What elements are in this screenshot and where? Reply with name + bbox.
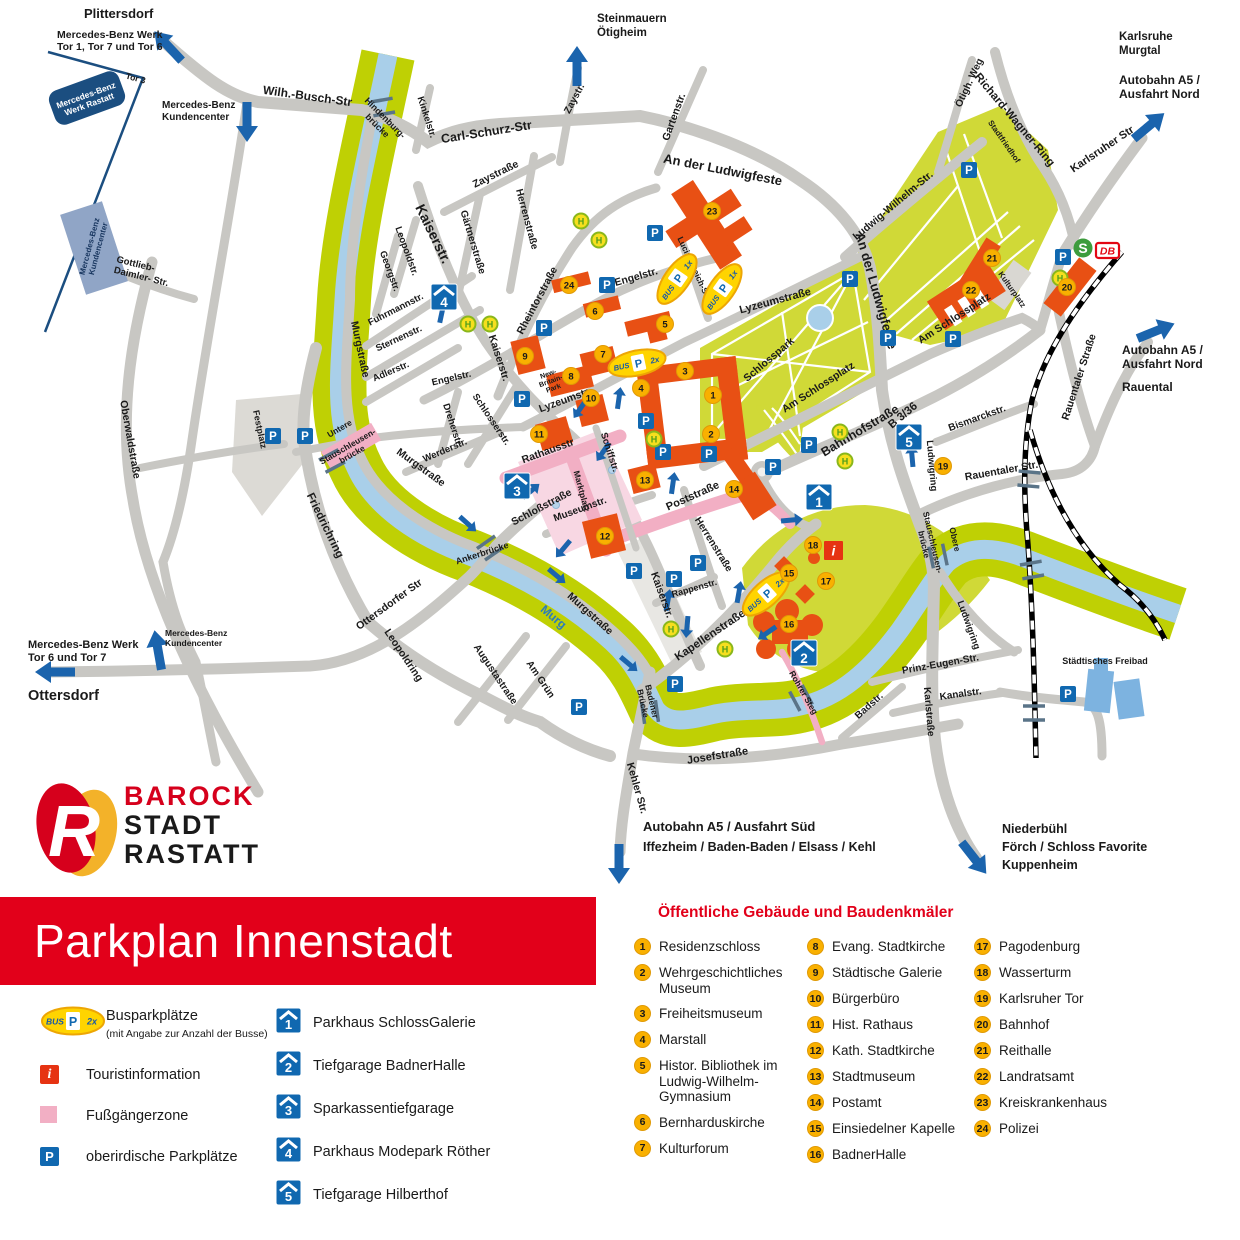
poi-marker-number: 17 (821, 577, 832, 588)
building-legend-item: 5Histor. Bibliothek im Ludwig-Wilhelm-Gy… (634, 1057, 807, 1105)
parking-icon-letter: P (301, 431, 309, 443)
svg-text:2: 2 (285, 1060, 292, 1075)
bus-parking-sublabel: (mit Angabe zur Anzahl der Busse) (106, 1028, 268, 1040)
surface-parking-icon: P (40, 1147, 59, 1166)
building-number-badge: 18 (974, 964, 991, 981)
poi-marker-number: 7 (600, 350, 605, 361)
tourist-info-label: Touristinformation (86, 1065, 200, 1084)
building-legend-item: 12Kath. Stadtkirche (807, 1042, 974, 1059)
street-label: Autobahn A5 /Ausfahrt Nord (1119, 73, 1201, 101)
building-label: Hist. Rathaus (832, 1016, 913, 1033)
building-number-badge: 15 (807, 1120, 824, 1137)
poi-marker-number: 6 (592, 307, 597, 318)
poi-marker-number: 4 (638, 384, 644, 395)
building-legend-item: 14Postamt (807, 1094, 974, 1111)
building-number-badge: 12 (807, 1042, 824, 1059)
parking-icon-letter: P (846, 274, 854, 286)
building-number-badge: 1 (634, 938, 651, 955)
svg-text:BUS: BUS (46, 1017, 64, 1027)
bus-stop-letter: H (842, 456, 849, 466)
building-legend-item: 21Reithalle (974, 1042, 1179, 1059)
parking-icon-letter: P (670, 574, 678, 586)
parking-icon-letter: P (694, 558, 702, 570)
street-label: Mercedes-Benz WerkTor 6 und Tor 7 (28, 639, 139, 664)
garage-legend-label: Parkhaus Modepark Röther (313, 1144, 490, 1160)
legend-garages: 1Parkhaus SchlossGalerie2Tiefgarage Badn… (276, 1008, 576, 1223)
building-label: Karlsruher Tor (999, 990, 1084, 1007)
logo-text: BAROCK STADT RASTATT (124, 782, 260, 869)
street-label: Tor 3 (125, 71, 147, 86)
building-number-badge: 2 (634, 964, 651, 981)
building-legend-item: 3Freiheitsmuseum (634, 1005, 807, 1022)
poi-marker-number: 21 (987, 254, 998, 265)
rastatt-emblem: R (36, 778, 118, 882)
bus-stop-letter: H (651, 434, 658, 444)
garage-legend-label: Parkhaus SchlossGalerie (313, 1015, 476, 1031)
building-label: Kreiskrankenhaus (999, 1094, 1107, 1111)
poi-marker-number: 10 (586, 394, 597, 405)
poi-marker-number: 18 (808, 541, 819, 552)
parking-icon-letter: P (949, 334, 957, 346)
building-number-badge: 5 (634, 1057, 651, 1074)
bus-parking-icon: BUS P 2x (40, 1006, 106, 1036)
page-title: Parkplan Innenstadt (0, 897, 596, 966)
street-label: Rauental (1122, 380, 1173, 394)
street-label: Zaystr. (562, 82, 587, 116)
svg-text:1: 1 (285, 1017, 292, 1032)
poi-marker-number: 19 (938, 462, 949, 473)
parking-icon-letter: P (630, 566, 638, 578)
parking-icon-letter: P (805, 440, 813, 452)
street-label: Ottersdorf (28, 688, 99, 704)
building-number-badge: 14 (807, 1094, 824, 1111)
street-label: Oberwaldstraße (117, 399, 143, 479)
building-legend-item: 8Evang. Stadtkirche (807, 938, 974, 955)
building-number-badge: 9 (807, 964, 824, 981)
legend-garage-item: 3Sparkassentiefgarage (276, 1094, 576, 1124)
building-label: Bernharduskirche (659, 1114, 765, 1131)
building-legend-item: 20Bahnhof (974, 1016, 1179, 1033)
poi-marker-number: 13 (640, 476, 651, 487)
building-label: Postamt (832, 1094, 882, 1111)
oneway-arrow (611, 386, 627, 410)
building-legend-item: 22Landratsamt (974, 1068, 1179, 1085)
building-label: Bürgerbüro (832, 990, 900, 1007)
legend-symbols: BUS P 2x Busparkplätze (mit Angabe zur A… (40, 1006, 280, 1188)
poi-marker-number: 1 (710, 391, 716, 402)
street-label: Autobahn A5 / Ausfahrt Süd (643, 819, 815, 834)
building-label: Freiheitsmuseum (659, 1005, 763, 1022)
building-number-badge: 16 (807, 1146, 824, 1163)
building-legend-item: 10Bürgerbüro (807, 990, 974, 1007)
legend-item-touristinfo: i Touristinformation (40, 1065, 280, 1084)
oneway-arrow (665, 471, 681, 495)
street-label: NiederbühlFörch / Schloss FavoriteKuppen… (1002, 822, 1147, 872)
building-legend-item: 13Stadtmuseum (807, 1068, 974, 1085)
db-letters: DB (1100, 246, 1116, 258)
sbahn-letter: S (1078, 240, 1087, 256)
building-label: Städtische Galerie (832, 964, 942, 981)
parking-icon-letter: P (1064, 689, 1072, 701)
logo-line-3: RASTATT (124, 840, 260, 869)
poi-marker-number: 2 (708, 430, 713, 441)
poi-marker-number: 20 (1062, 283, 1073, 294)
building-legend-item: 2Wehrgeschichtliches Museum (634, 964, 807, 996)
building-legend-item: 1Residenzschloss (634, 938, 807, 955)
building-legend-item: 17Pagodenburg (974, 938, 1179, 955)
legend-garage-item: 5Tiefgarage Hilberthof (276, 1180, 576, 1210)
poi-marker-number: 12 (600, 532, 611, 543)
buildings-column: 8Evang. Stadtkirche9Städtische Galerie10… (807, 938, 974, 1172)
building-label: BadnerHalle (832, 1146, 906, 1163)
garage-legend-label: Sparkassentiefgarage (313, 1101, 454, 1117)
parking-icon-letter: P (575, 702, 583, 714)
building-label: Histor. Bibliothek im Ludwig-Wilhelm-Gym… (659, 1057, 807, 1105)
parking-icon-letter: P (965, 165, 973, 177)
parking-icon-letter: P (603, 280, 611, 292)
street-label: Friedrichring (304, 491, 346, 560)
building-label: Residenzschloss (659, 938, 760, 955)
bus-parking-icon-svg: BUS P 2x (40, 1006, 106, 1036)
street-label: Plittersdorf (84, 6, 154, 21)
garage-number: 2 (800, 651, 808, 666)
direction-arrow (35, 661, 75, 683)
building-label: Wehrgeschichtliches Museum (659, 964, 807, 996)
legend-item-busparkplaetze: BUS P 2x Busparkplätze (mit Angabe zur A… (40, 1006, 280, 1043)
logo-line-2: STADT (124, 811, 260, 840)
poi-marker-number: 11 (534, 430, 545, 441)
legend-garage-item: 4Parkhaus Modepark Röther (276, 1137, 576, 1167)
building-number-badge: 13 (807, 1068, 824, 1085)
building-legend-item: 9Städtische Galerie (807, 964, 974, 981)
parking-icon-letter: P (651, 228, 659, 240)
street-label: Mercedes-BenzKundencenter (165, 628, 227, 648)
garage-legend-icon: 5 (276, 1180, 301, 1210)
bus-stop-letter: H (465, 319, 472, 329)
building-label: Stadtmuseum (832, 1068, 915, 1085)
buildings-column: 1Residenzschloss2Wehrgeschichtliches Mus… (634, 938, 807, 1172)
street-label: Mercedes-BenzKundencenter (162, 100, 235, 123)
parking-icon-letter: P (269, 431, 277, 443)
building-label: Kath. Stadtkirche (832, 1042, 935, 1059)
building-number-badge: 22 (974, 1068, 991, 1085)
building-number-badge: 20 (974, 1016, 991, 1033)
poi-marker-number: 8 (568, 372, 573, 383)
building-number-badge: 17 (974, 938, 991, 955)
building-number-badge: 7 (634, 1140, 651, 1157)
poi-marker-number: 16 (784, 620, 795, 631)
svg-text:5: 5 (285, 1189, 292, 1204)
legend-label: Busparkplätze (mit Angabe zur Anzahl der… (106, 1006, 268, 1043)
building-label: Marstall (659, 1031, 706, 1048)
building-label: Kulturforum (659, 1140, 729, 1157)
building-number-badge: 10 (807, 990, 824, 1007)
building-legend-item: 18Wasserturm (974, 964, 1179, 981)
bus-stop-letter: H (668, 624, 675, 634)
street-label: Städtisches Freibad (1062, 656, 1148, 666)
building-label: Bahnhof (999, 1016, 1049, 1033)
building-legend-item: 24Polizei (974, 1120, 1179, 1137)
building-legend-item: 6Bernharduskirche (634, 1114, 807, 1131)
building-number-badge: 4 (634, 1031, 651, 1048)
building-label: Reithalle (999, 1042, 1052, 1059)
building-legend-item: 11Hist. Rathaus (807, 1016, 974, 1033)
schlosspark-pond (807, 305, 833, 331)
building-number-badge: 24 (974, 1120, 991, 1137)
poi-marker-number: 3 (682, 367, 687, 378)
building-number-badge: 21 (974, 1042, 991, 1059)
parking-icon-letter: P (705, 449, 713, 461)
bus-stop-letter: H (837, 427, 844, 437)
building-number-badge: 19 (974, 990, 991, 1007)
parking-icon-letter: P (884, 333, 892, 345)
direction-arrow (566, 46, 588, 86)
legend-garage-item: 2Tiefgarage BadnerHalle (276, 1051, 576, 1081)
legend-item-fussgaengerzone: Fußgängerzone (40, 1106, 280, 1125)
street-label: SteinmauernÖtigheim (597, 13, 667, 39)
building-label: Evang. Stadtkirche (832, 938, 945, 955)
buildings-heading: Öffentliche Gebäude und Baudenkmäler (634, 904, 1234, 922)
pedestrian-zone-swatch (40, 1106, 57, 1123)
building-label: Einsiedelner Kapelle (832, 1120, 955, 1137)
building-number-badge: 23 (974, 1094, 991, 1111)
parking-icon-letter: P (659, 447, 667, 459)
bus-parking-label: Busparkplätze (106, 1008, 198, 1024)
building-legend-item: 23Kreiskrankenhaus (974, 1094, 1179, 1111)
freibad-buildings (1084, 658, 1145, 720)
legend-item-parkplaetze: P oberirdische Parkplätze (40, 1147, 280, 1166)
buildings-columns: 1Residenzschloss2Wehrgeschichtliches Mus… (634, 938, 1234, 1172)
poi-marker-number: 5 (662, 320, 668, 331)
garage-number: 5 (905, 435, 913, 450)
garage-legend-icon: 2 (276, 1051, 301, 1081)
bus-stop-letter: H (487, 319, 494, 329)
garage-legend-icon: 1 (276, 1008, 301, 1038)
svg-text:P: P (69, 1015, 77, 1029)
bus-stop-letter: H (722, 644, 729, 654)
parking-icon-letter: P (671, 679, 679, 691)
building-number-badge: 6 (634, 1114, 651, 1131)
parkplan-poster: PlittersdorfMercedes-Benz WerkTor 1, Tor… (0, 0, 1240, 1240)
building-legend-item: 7Kulturforum (634, 1140, 807, 1157)
poi-marker-number: 9 (522, 352, 527, 363)
parking-icon-letter: P (540, 323, 548, 335)
building-legend-item: 16BadnerHalle (807, 1146, 974, 1163)
garage-number: 3 (513, 484, 521, 499)
poi-marker-number: 24 (564, 281, 575, 292)
street-label: Iffezheim / Baden-Baden / Elsass / Kehl (643, 840, 876, 854)
poi-marker-number: 15 (784, 569, 795, 580)
buildings-column: 17Pagodenburg18Wasserturm19Karlsruher To… (974, 938, 1179, 1172)
poi-marker-number: 23 (707, 207, 718, 218)
bus-stop-letter: H (578, 216, 585, 226)
building-number-badge: 8 (807, 938, 824, 955)
parking-icon-letter: P (1059, 252, 1067, 264)
tourist-info-icon: i (40, 1065, 59, 1084)
legend-garage-item: 1Parkhaus SchlossGalerie (276, 1008, 576, 1038)
garage-legend-icon: 3 (276, 1094, 301, 1124)
buildings-legend: Öffentliche Gebäude und Baudenkmäler 1Re… (634, 904, 1234, 1172)
building-kreiskrankenhaus (650, 165, 764, 283)
title-banner: Parkplan Innenstadt (0, 897, 596, 985)
building-legend-item: 4Marstall (634, 1031, 807, 1048)
bus-stop-letter: H (596, 235, 603, 245)
city-map: PlittersdorfMercedes-Benz WerkTor 1, Tor… (0, 0, 1240, 900)
building-number-badge: 3 (634, 1005, 651, 1022)
parking-icon-letter: P (769, 462, 777, 474)
pedestrian-zone-label: Fußgängerzone (86, 1106, 188, 1125)
logo-line-1: BAROCK (124, 782, 260, 811)
building-label: Wasserturm (999, 964, 1071, 981)
svg-text:2x: 2x (86, 1017, 98, 1027)
building-number-badge: 11 (807, 1016, 824, 1033)
direction-arrow (608, 844, 630, 884)
garage-legend-label: Tiefgarage Hilberthof (313, 1187, 448, 1203)
building-label: Landratsamt (999, 1068, 1074, 1085)
street-label: KarlsruheMurgtal (1119, 31, 1173, 57)
poi-marker-number: 22 (966, 286, 977, 297)
street-label: Mercedes-Benz WerkTor 1, Tor 7 und Tor 6 (57, 29, 163, 53)
street-label: Autobahn A5 /Ausfahrt Nord (1122, 343, 1204, 371)
emblem-r-letter: R (48, 792, 100, 872)
building-label: Polizei (999, 1120, 1039, 1137)
garage-number: 1 (815, 495, 823, 510)
garage-legend-icon: 4 (276, 1137, 301, 1167)
building-label: Pagodenburg (999, 938, 1080, 955)
garage-legend-label: Tiefgarage BadnerHalle (313, 1058, 466, 1074)
logo: R BAROCK STADT RASTATT (36, 774, 266, 886)
poi-marker-number: 14 (729, 485, 740, 496)
building-legend-item: 15Einsiedelner Kapelle (807, 1120, 974, 1137)
svg-text:4: 4 (285, 1146, 293, 1161)
building-legend-item: 19Karlsruher Tor (974, 990, 1179, 1007)
bridge-bar (1017, 485, 1039, 487)
garage-number: 4 (440, 295, 448, 310)
parking-icon-letter: P (518, 394, 526, 406)
parking-icon-letter: P (642, 416, 650, 428)
surface-parking-label: oberirdische Parkplätze (86, 1147, 238, 1166)
svg-text:3: 3 (285, 1103, 292, 1118)
